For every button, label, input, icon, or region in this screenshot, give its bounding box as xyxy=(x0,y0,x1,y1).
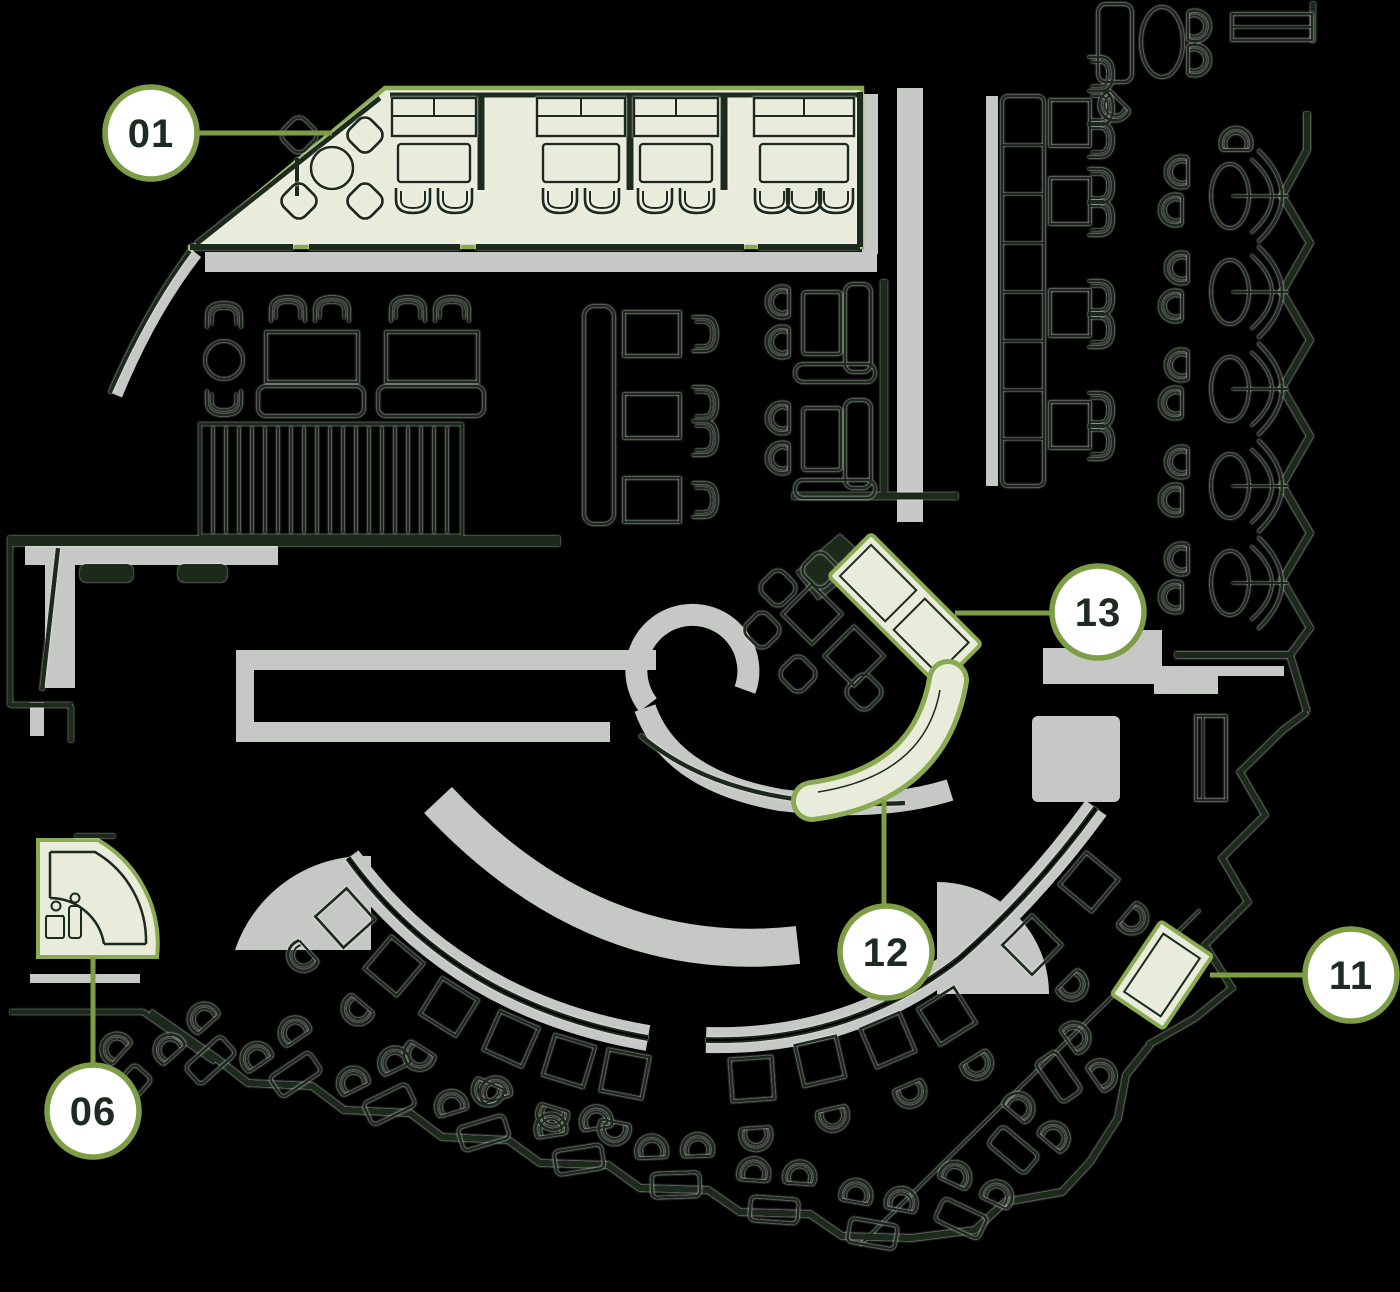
callout-12-label: 12 xyxy=(863,931,910,975)
left-row-tables xyxy=(205,297,484,416)
callout-11-label: 11 xyxy=(1329,954,1373,998)
chevron-booths xyxy=(1160,128,1288,629)
track-ring-top xyxy=(236,650,656,670)
gray-step-right xyxy=(1154,666,1284,694)
callout-13[interactable]: 13 xyxy=(955,566,1144,658)
walkway-right-band xyxy=(862,94,878,254)
walkway-strip-center xyxy=(897,88,923,522)
callout-06-label: 06 xyxy=(70,1090,117,1134)
callout-12[interactable]: 12 xyxy=(840,800,932,998)
callout-11[interactable]: 11 xyxy=(1210,929,1397,1021)
rail-left-walkway xyxy=(348,858,648,1038)
center-bench-row xyxy=(584,306,717,524)
walkway-top-band xyxy=(205,252,877,272)
track-ring-cap xyxy=(236,650,254,742)
right-banquette-column xyxy=(1002,57,1113,486)
callout-13-label: 13 xyxy=(1075,591,1122,635)
track-ring-bottom xyxy=(236,722,610,742)
walkway-curve-left xyxy=(116,253,196,395)
floor-plan-canvas: 01 13 12 06 11 xyxy=(0,0,1400,1292)
smile-band xyxy=(438,800,798,948)
walkway-stub-06 xyxy=(30,974,140,983)
callout-06[interactable]: 06 xyxy=(47,957,139,1157)
gray-block xyxy=(1032,716,1120,802)
floor-plan: 01 13 12 06 11 xyxy=(0,0,1400,1292)
walkway-strip-right xyxy=(986,96,998,486)
center-booths xyxy=(767,284,875,498)
callout-01-label: 01 xyxy=(128,112,175,156)
table-near-11 xyxy=(1196,716,1226,800)
top-right-group xyxy=(1093,4,1312,127)
